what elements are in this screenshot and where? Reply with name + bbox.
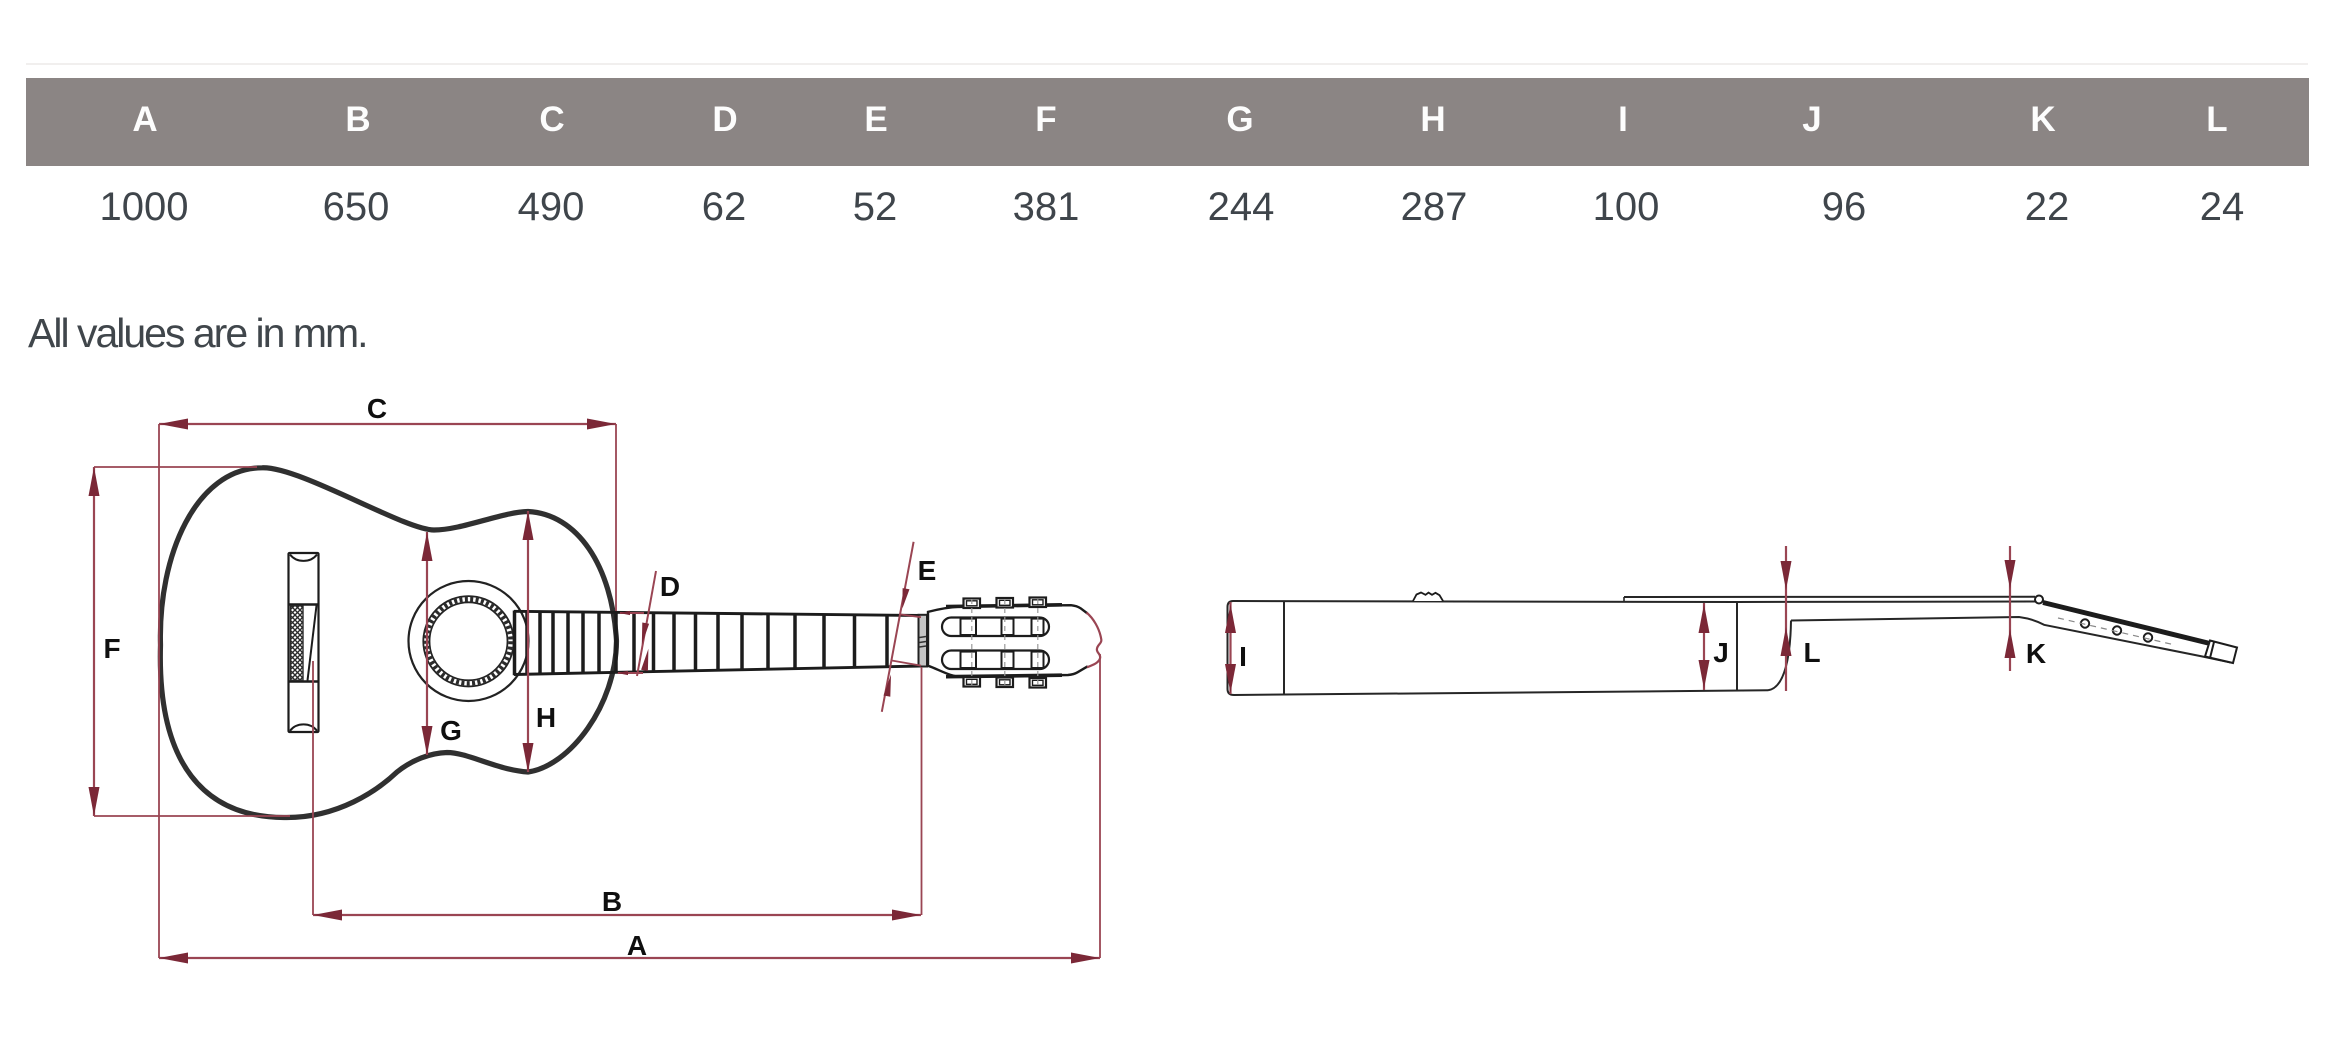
svg-text:B: B xyxy=(602,886,622,917)
svg-text:J: J xyxy=(1713,637,1729,668)
svg-text:E: E xyxy=(918,555,937,586)
svg-text:H: H xyxy=(536,702,556,733)
svg-text:C: C xyxy=(367,393,387,424)
svg-text:G: G xyxy=(440,715,462,746)
svg-text:D: D xyxy=(660,571,680,602)
svg-text:K: K xyxy=(2026,638,2046,669)
svg-text:A: A xyxy=(627,930,647,961)
svg-text:L: L xyxy=(1803,637,1820,668)
svg-text:F: F xyxy=(103,633,120,664)
svg-text:I: I xyxy=(1239,641,1247,672)
